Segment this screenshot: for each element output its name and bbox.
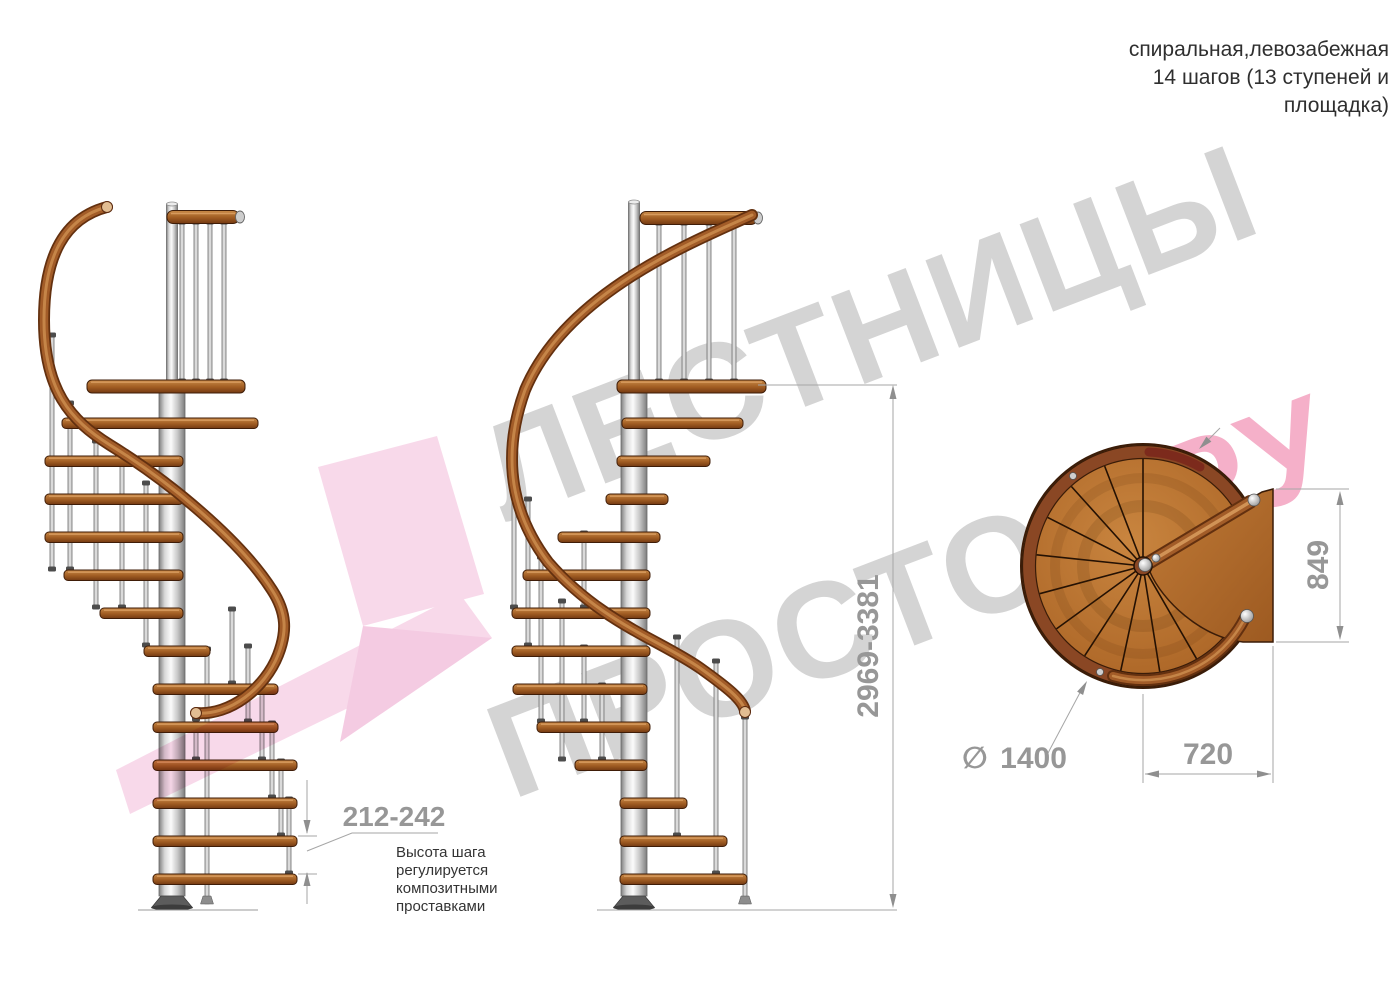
stair-side-view-left <box>44 202 297 911</box>
dimension-total-height-label: 2969-3381 <box>852 574 885 717</box>
step-note-line1: Высота шага <box>396 844 486 861</box>
dimension-step-height-label: 212-242 <box>343 801 446 832</box>
step-note-line4: проставками <box>396 898 485 915</box>
dimension-diameter-label: ∅ 1400 <box>962 742 1067 775</box>
dimension-step-height: 212-242 Высота шага регулируется компози… <box>298 780 498 915</box>
watermark-text-layer: ЛЕСТНИЦЫ ПРОСТО . РУ <box>461 115 1356 828</box>
diameter-value: 1400 <box>1000 742 1067 775</box>
dimension-diameter: ∅ 1400 <box>962 681 1087 775</box>
title-block: спиральная,левозабежная 14 шагов (13 сту… <box>1129 36 1389 120</box>
step-note-line3: композитными <box>396 880 498 897</box>
title-line-3: площадка) <box>1129 92 1389 120</box>
title-line-2: 14 шагов (13 ступеней и <box>1129 64 1389 92</box>
dimension-plan-depth-label: 849 <box>1302 540 1335 590</box>
step-note-line2: регулируется <box>396 862 488 879</box>
dimension-plan-width-label: 720 <box>1183 738 1233 771</box>
technical-drawing: ЛЕСТНИЦЫ ПРОСТО . РУ 2969-3381 <box>0 0 1400 1000</box>
diameter-symbol: ∅ <box>962 742 988 775</box>
page-root: { "title_block": { "line1": "спиральная,… <box>0 0 1400 1000</box>
title-line-1: спиральная,левозабежная <box>1129 36 1389 64</box>
